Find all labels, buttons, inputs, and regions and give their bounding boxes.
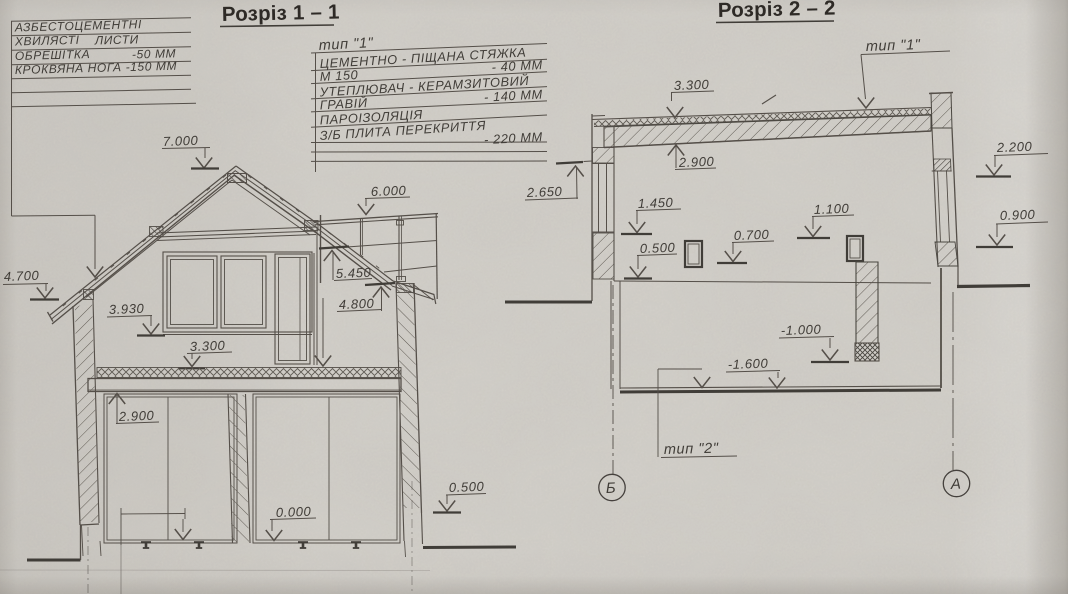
svg-text:2.650: 2.650 bbox=[526, 184, 563, 200]
svg-text:ЛИСТИ: ЛИСТИ bbox=[94, 32, 139, 47]
svg-text:3.300: 3.300 bbox=[190, 338, 226, 354]
svg-text:- 40 ММ: - 40 ММ bbox=[491, 57, 543, 75]
svg-text:Розріз 2 – 2: Розріз 2 – 2 bbox=[718, 0, 836, 22]
svg-text:3.930: 3.930 bbox=[109, 301, 145, 317]
svg-text:ХВИЛЯСТІ: ХВИЛЯСТІ bbox=[14, 33, 80, 49]
svg-text:2.900: 2.900 bbox=[678, 154, 715, 170]
svg-text:2.900: 2.900 bbox=[118, 408, 155, 424]
svg-text:тип "2": тип "2" bbox=[664, 441, 719, 458]
svg-text:-1.600: -1.600 bbox=[728, 356, 769, 372]
svg-text:2.200: 2.200 bbox=[996, 139, 1033, 155]
svg-text:- 140 ММ: - 140 ММ bbox=[484, 87, 544, 105]
svg-text:0.000: 0.000 bbox=[276, 504, 312, 520]
svg-text:1.100: 1.100 bbox=[814, 201, 850, 217]
svg-text:0.500: 0.500 bbox=[640, 240, 676, 256]
svg-text:0.700: 0.700 bbox=[734, 227, 770, 243]
svg-text:4.700: 4.700 bbox=[4, 268, 40, 284]
svg-text:1.450: 1.450 bbox=[638, 195, 674, 211]
svg-text:- 220 ММ: - 220 ММ bbox=[484, 129, 544, 147]
svg-text:3.300: 3.300 bbox=[674, 77, 710, 93]
svg-text:0.900: 0.900 bbox=[1000, 207, 1036, 223]
svg-text:6.000: 6.000 bbox=[371, 183, 407, 199]
svg-text:Розріз 1 – 1: Розріз 1 – 1 bbox=[222, 1, 340, 26]
svg-text:Б: Б bbox=[606, 480, 617, 497]
svg-text:А: А bbox=[950, 476, 962, 493]
svg-text:-1.000: -1.000 bbox=[781, 322, 822, 338]
svg-text:М 150: М 150 bbox=[319, 67, 359, 84]
svg-text:7.000: 7.000 bbox=[163, 133, 199, 149]
svg-text:0.500: 0.500 bbox=[449, 479, 485, 495]
